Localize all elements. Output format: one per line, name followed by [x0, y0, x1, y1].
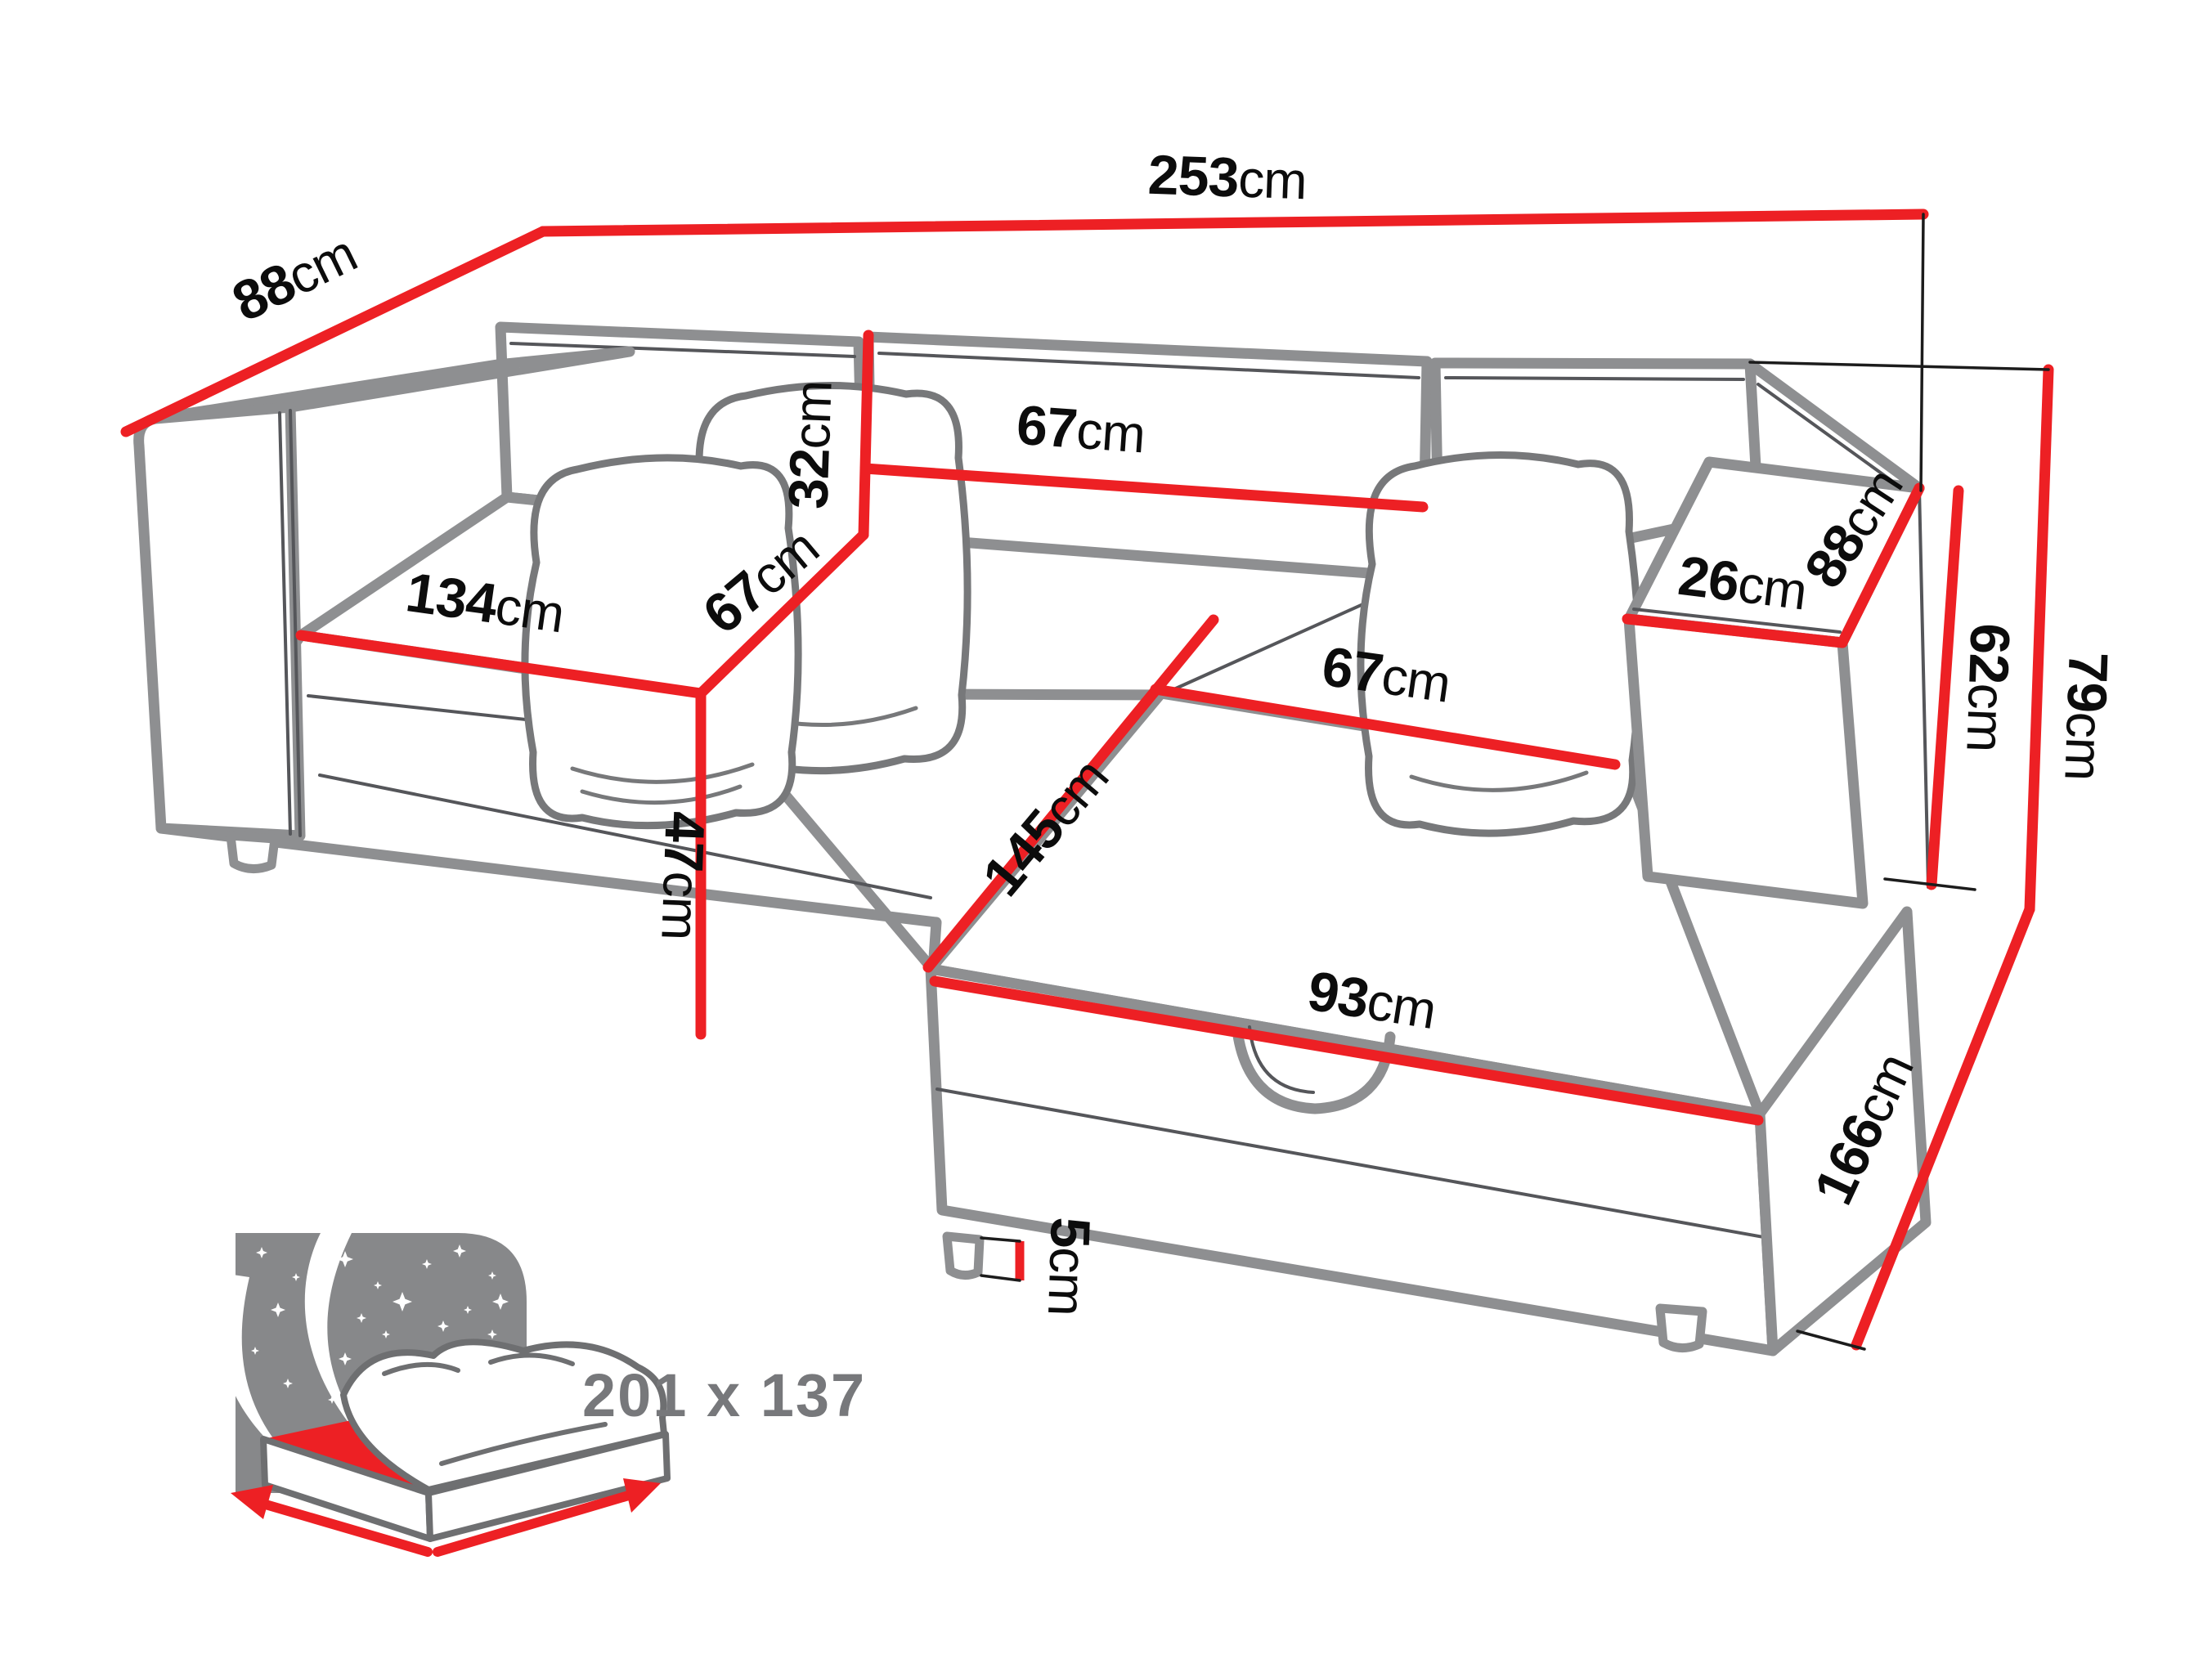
- left-armrest-leg: [231, 836, 275, 869]
- dim-line-total-height: [2030, 370, 2048, 909]
- chaise-right-leg: [1660, 1308, 1703, 1348]
- dim-line-backrest-height: [864, 335, 868, 535]
- label-total-height: 79cm: [2053, 651, 2119, 782]
- tick-leg-bottom: [981, 1276, 1020, 1280]
- sofa-dimension-diagram: 88cm 253cm 32cm 67cm 134cm 67cm 47cm 67c…: [0, 0, 2212, 1659]
- chaise-left-leg: [947, 1236, 980, 1276]
- icon-depth-arrowhead: [623, 1478, 661, 1513]
- right-armrest-front: [1629, 619, 1863, 903]
- left-armrest-front: [139, 407, 300, 836]
- label-seat-height: 47cm: [649, 810, 716, 941]
- label-back-depth: 88cm: [223, 222, 366, 334]
- sleeping-area-icon: 201 x 137: [218, 1233, 866, 1552]
- label-backrest-width: 67cm: [1015, 394, 1147, 465]
- label-backrest-height: 32cm: [777, 379, 843, 510]
- tick-leg-top: [981, 1238, 1020, 1241]
- pillow-right: [1361, 455, 1639, 833]
- dim-line-total-width: [543, 214, 1923, 231]
- label-leg-height: 5cm: [1036, 1216, 1102, 1316]
- extension-vertical-right: [1921, 214, 1923, 491]
- extension-horizontal-right: [1750, 362, 2048, 370]
- label-armrest-height: 62cm: [1954, 622, 2021, 753]
- label-total-width: 253cm: [1147, 144, 1308, 212]
- dim-line-armrest-height: [1932, 491, 1958, 885]
- sleeping-area-size-label: 201 x 137: [582, 1361, 866, 1429]
